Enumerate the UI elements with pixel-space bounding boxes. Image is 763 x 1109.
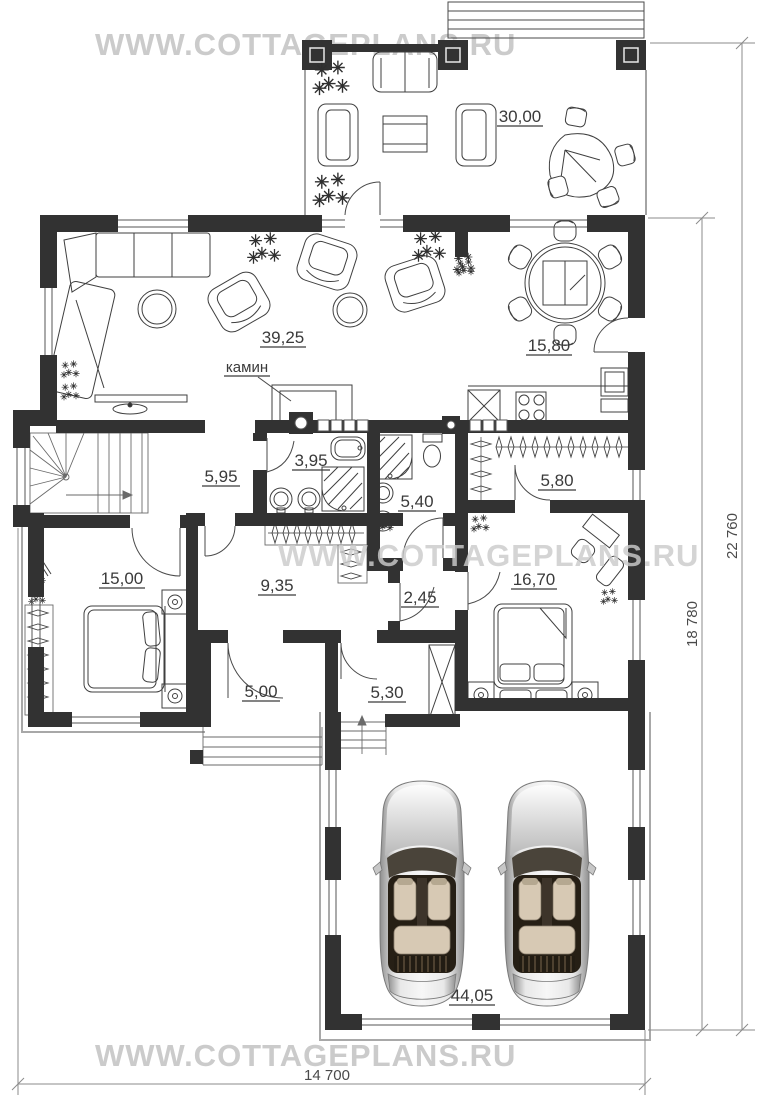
hall-label: 5,95: [204, 467, 237, 486]
armchair: [294, 231, 360, 293]
bed-1: [84, 606, 165, 692]
nightstand: [162, 590, 188, 614]
floor-plan-page: WWW.COTTAGEPLANS.RU WWW.COTTAGEPLANS.RU: [0, 0, 763, 1109]
bed-2: [494, 604, 572, 688]
hall-staircase: [30, 433, 148, 513]
shower-1: [322, 467, 364, 511]
side-table-inner: [142, 294, 172, 324]
car-left: [373, 781, 471, 1006]
garage-label: 44,05: [451, 986, 494, 1005]
boiler-room-fixtures: [429, 645, 455, 719]
plant: [600, 588, 618, 605]
entry-steps: [190, 727, 322, 765]
side-table: [138, 290, 176, 328]
terrace-coffee-table: [383, 116, 427, 152]
bath1-sinks: [270, 488, 320, 513]
bathtub: [331, 437, 365, 460]
boiler-room-label: 5,30: [370, 683, 403, 702]
plant: [60, 382, 79, 400]
terrace-dining-set: [547, 106, 637, 208]
watermark-middle: WWW.COTTAGEPLANS.RU: [278, 538, 699, 573]
garage-steps: [338, 714, 386, 755]
plant: [247, 232, 281, 264]
armchair: [382, 253, 448, 315]
kitchen-dining-label: 15,80: [528, 336, 571, 355]
bathroom-1-fixtures: [270, 437, 365, 513]
kitchen-dining-furniture: [455, 221, 632, 423]
bath-lobby-label: 2,45: [403, 588, 436, 607]
plant: [313, 173, 350, 208]
terrace-label: 30,00: [499, 107, 542, 126]
corner-sofa: [46, 233, 210, 400]
side-table-2: [333, 293, 367, 327]
wardrobe-label: 5,80: [540, 471, 573, 490]
fridge: [601, 368, 628, 412]
toilet: [423, 434, 442, 467]
dimension-overall-height: 22 760: [724, 513, 741, 559]
armchair: [204, 268, 275, 337]
dimension-overall-width: 14 700: [304, 1067, 350, 1084]
fireplace-leader: [258, 377, 291, 401]
plant: [470, 514, 489, 532]
nightstand: [162, 684, 188, 708]
kitchen-counter: [468, 368, 632, 422]
bathroom-2-label: 5,40: [400, 492, 433, 511]
terrace-loveseats: [318, 104, 496, 166]
tv-console: [95, 395, 187, 414]
living-room-furniture: [46, 230, 475, 428]
floor-plan-drawing: WWW.COTTAGEPLANS.RU WWW.COTTAGEPLANS.RU: [0, 0, 763, 1109]
kitchen-sink: [468, 390, 500, 422]
dimension-house-height: 18 780: [684, 601, 701, 647]
bedroom-1-label: 15,00: [101, 569, 144, 588]
cooktop: [516, 392, 546, 422]
side-table-2-inner: [337, 297, 363, 323]
fireplace-label: камин: [226, 359, 268, 376]
car-right: [498, 781, 596, 1006]
cars: [373, 781, 596, 1006]
corridor-label: 9,35: [260, 576, 293, 595]
plant: [60, 360, 79, 378]
terrace-beam: [332, 44, 438, 52]
dining-table-set: [505, 221, 624, 346]
entry-label: 5,00: [244, 682, 277, 701]
living-room-label: 39,25: [262, 328, 305, 347]
bathroom-1-label: 3,95: [294, 451, 327, 470]
